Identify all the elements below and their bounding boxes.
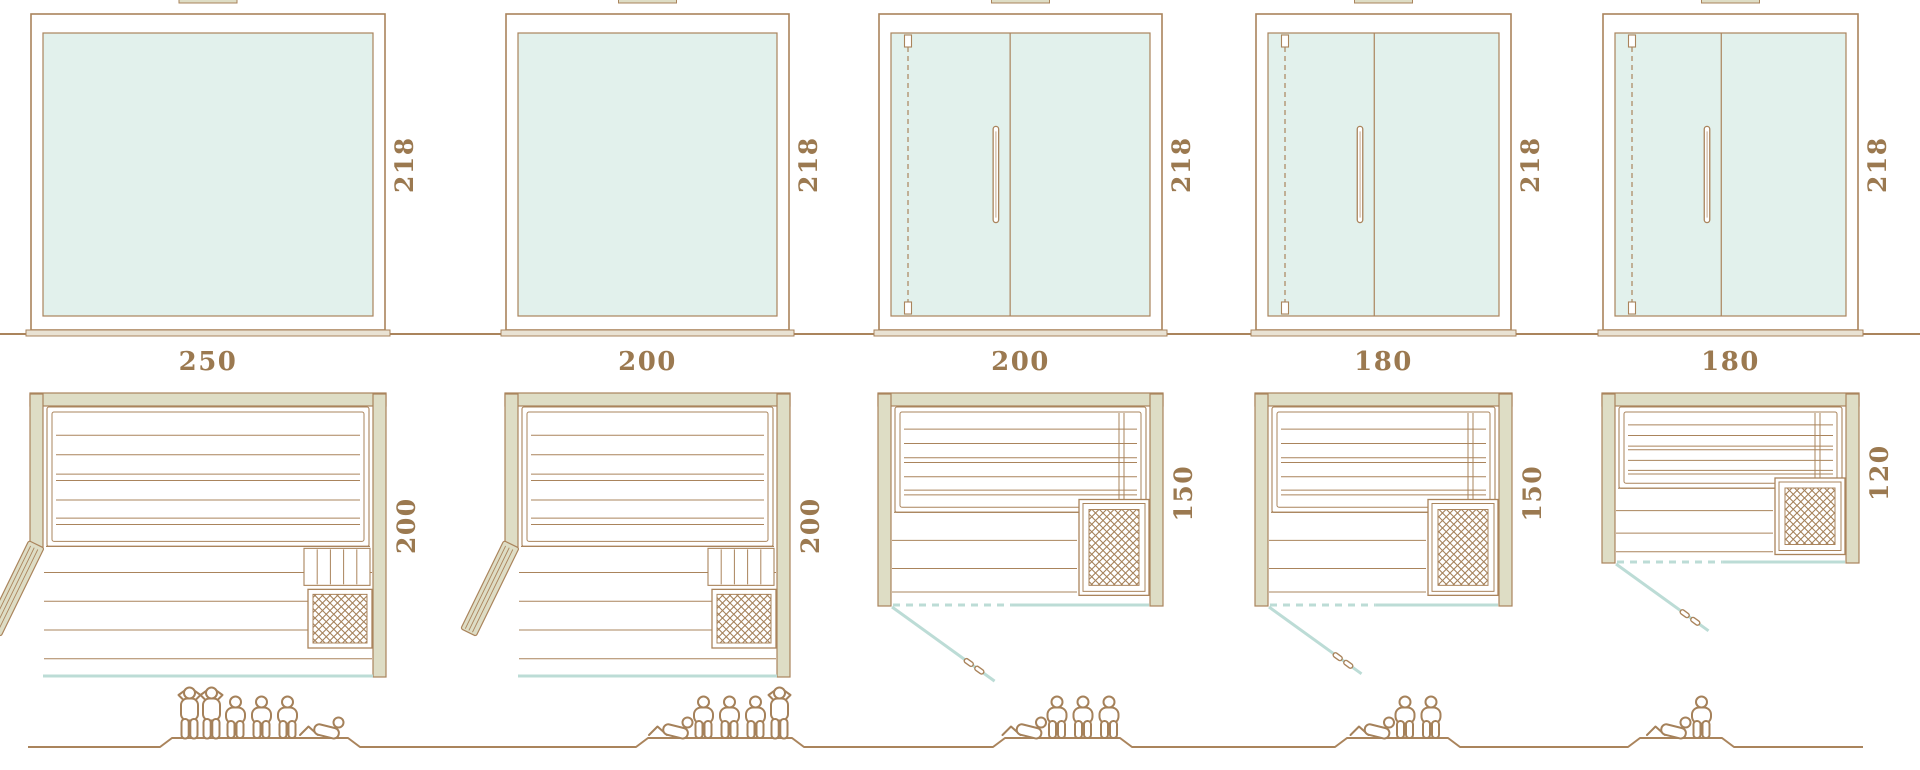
roof-vent-bar: [992, 0, 1050, 3]
plan-left-wall: [1255, 394, 1268, 606]
plan-right-wall: [777, 394, 790, 677]
elevation-sill: [1598, 330, 1863, 336]
plan-left-wall: [30, 394, 43, 547]
capacity-figures-group-6-persons: [179, 688, 344, 740]
front-elevation-drawing: [1596, 0, 1865, 340]
plan-back-wall: [878, 393, 1163, 406]
glass-pane: [43, 33, 373, 316]
door-hinge-top-icon: [905, 35, 912, 47]
bench-frame-inner: [900, 412, 1141, 507]
plan-left-wall: [505, 394, 518, 547]
elevation-sill: [874, 330, 1167, 336]
capacity-figures-group-3-persons: [1351, 697, 1441, 740]
front-elevation-drawing: [499, 0, 796, 340]
roof-vent-bar: [1355, 0, 1413, 3]
sitting-person-figure: [694, 697, 713, 739]
lying-person-figure: [300, 718, 344, 740]
floor-plan-drawing: [838, 393, 1203, 691]
standing-person-figure: [769, 688, 791, 739]
elevation-sill: [1251, 330, 1516, 336]
lying-person-figure: [649, 718, 693, 740]
door-hinge-top-icon: [1282, 35, 1289, 47]
bench-frame-inner: [1277, 412, 1490, 507]
front-elevation-drawing: [872, 0, 1169, 340]
open-side-door: [0, 541, 44, 637]
plan-right-wall: [1846, 394, 1859, 563]
plan-right-wall: [1150, 394, 1163, 606]
floor-plan-drawing: [1215, 393, 1552, 691]
bench-step-section: [708, 548, 774, 585]
sitting-person-figure: [1692, 697, 1711, 739]
roof-vent-bar: [179, 0, 237, 3]
height-dimension-label: 218: [1167, 100, 1196, 230]
bench-frame-inner: [52, 412, 364, 541]
front-elevation-drawing: [24, 0, 392, 340]
plan-back-wall: [505, 393, 790, 406]
door-hinge-top-icon: [1629, 35, 1636, 47]
capacity-figures-group-2-persons: [1647, 697, 1711, 740]
floor-plan-drawing: [1562, 393, 1899, 648]
model-column-3: 200218150: [878, 0, 879, 770]
heater-top-view: [1428, 500, 1498, 596]
bench-frame-outer: [1272, 407, 1495, 512]
roof-vent-bar: [619, 0, 677, 3]
glass-pane: [1615, 33, 1846, 316]
sitting-person-figure: [1048, 697, 1067, 739]
plan-back-wall: [1255, 393, 1512, 406]
standing-person-figure: [179, 688, 201, 739]
width-dimension-label: 180: [1255, 347, 1512, 377]
width-dimension-label: 180: [1602, 347, 1859, 377]
elevation-sill: [26, 330, 390, 336]
roof-vent-bar: [1702, 0, 1760, 3]
plan-left-wall: [878, 394, 891, 606]
heater-grill-hatch: [1438, 510, 1488, 586]
heater-top-view: [1079, 500, 1149, 596]
bench-frame-outer: [47, 407, 369, 546]
elevation-sill: [501, 330, 794, 336]
bench-frame-inner: [1624, 412, 1837, 483]
width-dimension-label: 250: [30, 347, 386, 377]
model-column-2: 200218200: [505, 0, 506, 770]
lying-person-figure: [1647, 718, 1691, 740]
plan-back-wall: [30, 393, 386, 406]
bench-frame-outer: [522, 407, 773, 546]
standing-person-figure: [201, 688, 223, 739]
sitting-person-figure: [226, 697, 245, 739]
heater-grill-hatch: [1089, 510, 1139, 586]
door-hinge-bottom-icon: [1629, 302, 1636, 314]
capacity-figures-group-5-persons: [649, 688, 791, 740]
sitting-person-figure: [1074, 697, 1093, 739]
heater-grill-hatch: [1785, 488, 1835, 545]
heater-grill-hatch: [717, 594, 771, 643]
heater-top-view: [712, 589, 776, 648]
bench-step-section: [304, 548, 370, 585]
sitting-person-figure: [252, 697, 271, 739]
glass-pane: [891, 33, 1150, 316]
model-column-5: 180218120: [1602, 0, 1603, 770]
glass-pane: [518, 33, 777, 316]
heater-top-view: [1775, 478, 1845, 555]
bench-frame-inner: [527, 412, 768, 541]
height-dimension-label: 218: [794, 100, 823, 230]
heater-grill-hatch: [313, 594, 367, 643]
sitting-person-figure: [746, 697, 765, 739]
width-dimension-label: 200: [505, 347, 790, 377]
sauna-size-comparison-diagram: 2502182002002182002002181501802181501802…: [0, 0, 1920, 770]
height-dimension-label: 218: [1516, 100, 1545, 230]
plan-right-wall: [373, 394, 386, 677]
width-dimension-label: 200: [878, 347, 1163, 377]
sitting-person-figure: [720, 697, 739, 739]
glass-pane: [1268, 33, 1499, 316]
sitting-person-figure: [1396, 697, 1415, 739]
door-hinge-bottom-icon: [1282, 302, 1289, 314]
height-dimension-label: 218: [390, 100, 419, 230]
people-ground-line: [28, 738, 1863, 747]
capacity-figures-group-4-persons: [1003, 697, 1119, 740]
plan-back-wall: [1602, 393, 1859, 406]
capacity-figures-row: [0, 670, 1920, 770]
sitting-person-figure: [1422, 697, 1441, 739]
lying-person-figure: [1003, 718, 1047, 740]
plan-left-wall: [1602, 394, 1615, 563]
door-hinge-bottom-icon: [905, 302, 912, 314]
height-dimension-label: 218: [1863, 100, 1892, 230]
heater-top-view: [308, 589, 372, 648]
front-elevation-drawing: [1249, 0, 1518, 340]
bench-frame-outer: [895, 407, 1146, 512]
open-side-door: [461, 541, 519, 637]
model-column-1: 250218200: [30, 0, 31, 770]
plan-right-wall: [1499, 394, 1512, 606]
model-column-4: 180218150: [1255, 0, 1256, 770]
sitting-person-figure: [1100, 697, 1119, 739]
bench-frame-outer: [1619, 407, 1842, 488]
lying-person-figure: [1351, 718, 1395, 740]
sitting-person-figure: [278, 697, 297, 739]
